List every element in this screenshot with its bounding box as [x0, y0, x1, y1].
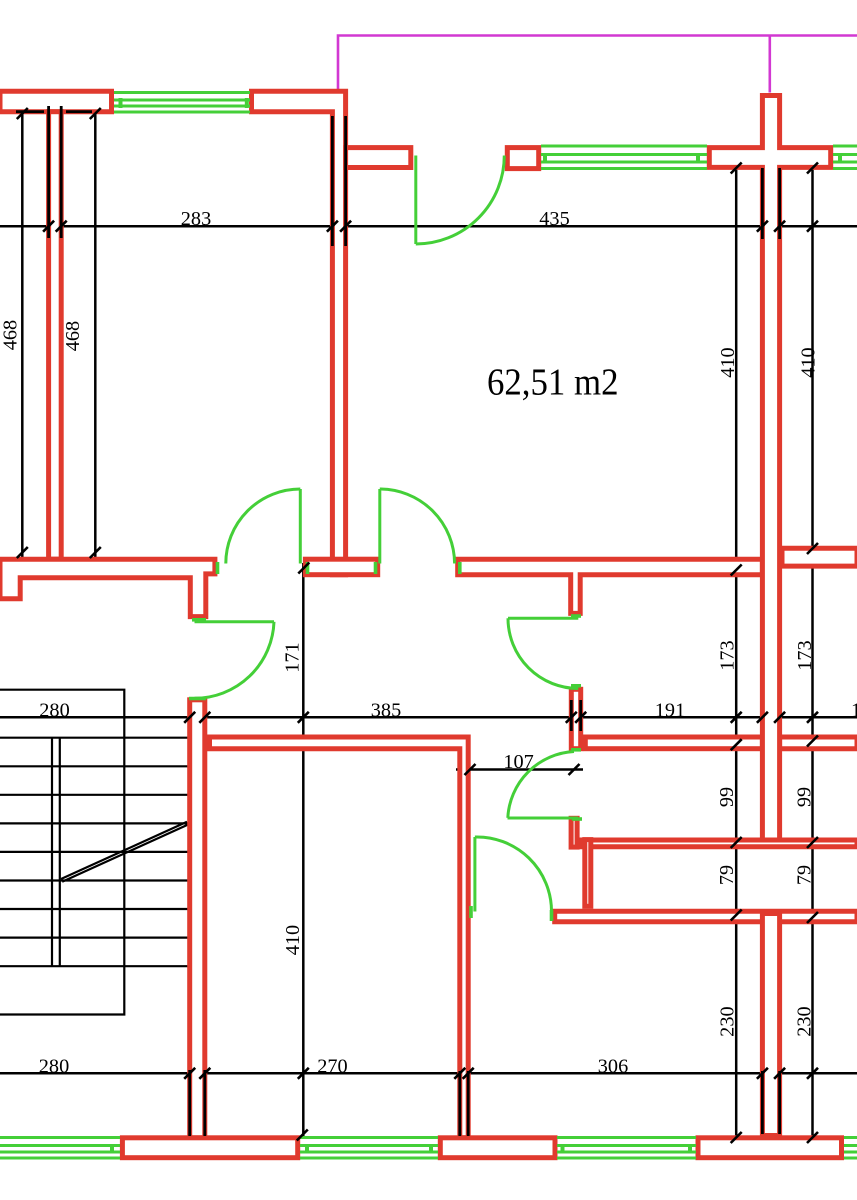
svg-text:10: 10	[851, 700, 857, 722]
svg-text:385: 385	[371, 700, 401, 722]
svg-text:230: 230	[717, 1006, 739, 1036]
svg-text:270: 270	[317, 1055, 347, 1077]
svg-text:435: 435	[539, 208, 569, 230]
svg-text:230: 230	[794, 1006, 816, 1036]
svg-text:306: 306	[598, 1055, 628, 1077]
svg-text:107: 107	[503, 751, 533, 773]
svg-text:173: 173	[717, 640, 739, 670]
svg-text:410: 410	[717, 347, 739, 377]
svg-text:191: 191	[655, 700, 685, 722]
svg-text:280: 280	[39, 1055, 69, 1077]
svg-text:468: 468	[62, 321, 84, 351]
svg-text:79: 79	[794, 865, 816, 885]
svg-text:410: 410	[798, 347, 820, 377]
svg-text:99: 99	[716, 787, 738, 807]
svg-text:468: 468	[0, 320, 21, 350]
svg-text:410: 410	[282, 925, 304, 955]
svg-text:99: 99	[794, 787, 816, 807]
svg-text:62,51 m2: 62,51 m2	[487, 362, 619, 404]
svg-text:280: 280	[39, 700, 69, 722]
svg-text:79: 79	[716, 865, 738, 885]
svg-text:283: 283	[181, 208, 211, 230]
svg-text:173: 173	[794, 640, 816, 670]
svg-text:171: 171	[282, 642, 304, 672]
